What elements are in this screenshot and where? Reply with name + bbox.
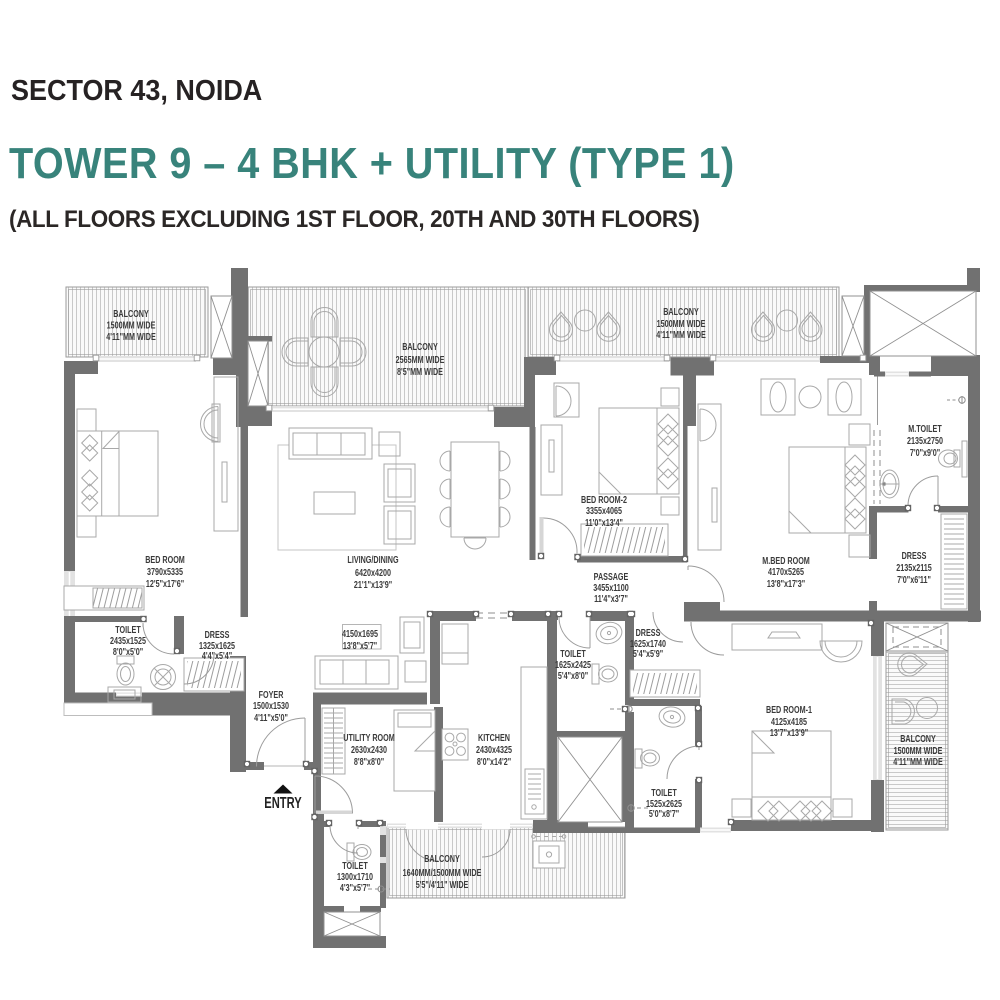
svg-text:PASSAGE: PASSAGE: [594, 571, 629, 582]
svg-text:1640MM/1500MM WIDE: 1640MM/1500MM WIDE: [403, 867, 482, 878]
svg-text:2135x2115: 2135x2115: [896, 562, 932, 573]
svg-text:1300x1710: 1300x1710: [337, 871, 373, 882]
svg-text:LIVING/DINING: LIVING/DINING: [347, 554, 398, 565]
svg-text:4'4"x5'4": 4'4"x5'4": [202, 650, 232, 661]
svg-text:TOILET: TOILET: [560, 648, 586, 659]
svg-text:8'8"x8'0": 8'8"x8'0": [354, 756, 384, 767]
svg-text:UTILITY ROOM: UTILITY ROOM: [343, 732, 394, 743]
svg-text:TOILET: TOILET: [651, 787, 677, 798]
svg-text:1500x1530: 1500x1530: [253, 700, 289, 711]
svg-text:21'1"x13'9": 21'1"x13'9": [354, 579, 392, 590]
svg-text:1500MM WIDE: 1500MM WIDE: [107, 319, 156, 330]
svg-text:11'0"x13'4": 11'0"x13'4": [585, 517, 623, 528]
svg-text:3455x1100: 3455x1100: [593, 582, 629, 593]
svg-text:13'7"x13'9": 13'7"x13'9": [770, 727, 808, 738]
svg-text:BED ROOM-2: BED ROOM-2: [581, 494, 627, 505]
svg-text:4'11"MM WIDE: 4'11"MM WIDE: [656, 329, 706, 340]
svg-text:6420x4200: 6420x4200: [355, 567, 391, 578]
svg-text:BALCONY: BALCONY: [663, 306, 699, 317]
svg-text:DRESS: DRESS: [902, 550, 927, 561]
svg-text:2135x2750: 2135x2750: [907, 435, 943, 446]
svg-text:5'0"x8'7": 5'0"x8'7": [649, 808, 679, 819]
svg-text:4'11"MM WIDE: 4'11"MM WIDE: [106, 331, 156, 342]
svg-text:8'0"x5'0": 8'0"x5'0": [113, 646, 143, 657]
svg-text:DRESS: DRESS: [636, 627, 661, 638]
svg-text:13'8"x5'7": 13'8"x5'7": [343, 640, 377, 651]
svg-text:13'8"x17'3": 13'8"x17'3": [767, 578, 805, 589]
svg-text:BALCONY: BALCONY: [402, 341, 438, 352]
svg-text:M.BED ROOM: M.BED ROOM: [762, 555, 810, 566]
svg-text:4'11"x5'0": 4'11"x5'0": [254, 712, 288, 723]
svg-text:2565MM WIDE: 2565MM WIDE: [396, 354, 445, 365]
svg-text:4125x4185: 4125x4185: [771, 716, 807, 727]
svg-text:ENTRY: ENTRY: [264, 794, 301, 811]
svg-text:DRESS: DRESS: [205, 629, 230, 640]
svg-text:2430x4325: 2430x4325: [476, 744, 512, 755]
svg-text:8'5"MM WIDE: 8'5"MM WIDE: [397, 366, 443, 377]
svg-text:3355x4065: 3355x4065: [586, 505, 622, 516]
svg-text:5'5"/4'11" WIDE: 5'5"/4'11" WIDE: [416, 879, 469, 890]
svg-text:4150x1695: 4150x1695: [342, 628, 378, 639]
svg-text:5'4"x5'9": 5'4"x5'9": [633, 648, 663, 659]
svg-text:4'11"MM WIDE: 4'11"MM WIDE: [893, 756, 943, 767]
svg-text:BALCONY: BALCONY: [113, 308, 149, 319]
svg-text:BED ROOM: BED ROOM: [145, 554, 185, 565]
svg-text:M.TOILET: M.TOILET: [908, 423, 942, 434]
svg-text:7'0"x9'0": 7'0"x9'0": [910, 447, 940, 458]
svg-text:8'0"x14'2": 8'0"x14'2": [477, 756, 511, 767]
svg-text:1625x2425: 1625x2425: [555, 659, 591, 670]
svg-text:4170x5265: 4170x5265: [768, 566, 804, 577]
svg-text:FOYER: FOYER: [259, 689, 284, 700]
svg-text:2435x1525: 2435x1525: [110, 635, 146, 646]
svg-text:TOILET: TOILET: [342, 860, 368, 871]
svg-text:3790x5335: 3790x5335: [147, 566, 183, 577]
svg-text:TOILET: TOILET: [115, 624, 141, 635]
svg-text:BED ROOM-1: BED ROOM-1: [766, 704, 812, 715]
svg-text:BALCONY: BALCONY: [424, 853, 460, 864]
svg-text:BALCONY: BALCONY: [900, 733, 936, 744]
svg-text:1500MM WIDE: 1500MM WIDE: [894, 745, 943, 756]
svg-text:12'5"x17'6": 12'5"x17'6": [146, 578, 184, 589]
svg-text:KITCHEN: KITCHEN: [478, 732, 510, 743]
svg-text:1500MM WIDE: 1500MM WIDE: [657, 318, 706, 329]
svg-text:2630x2430: 2630x2430: [351, 744, 387, 755]
svg-text:5'4"x8'0": 5'4"x8'0": [558, 670, 588, 681]
svg-text:4'3"x5'7": 4'3"x5'7": [340, 882, 370, 893]
svg-text:11'4"x3'7": 11'4"x3'7": [594, 593, 628, 604]
svg-text:7'0"x6'11": 7'0"x6'11": [897, 574, 931, 585]
